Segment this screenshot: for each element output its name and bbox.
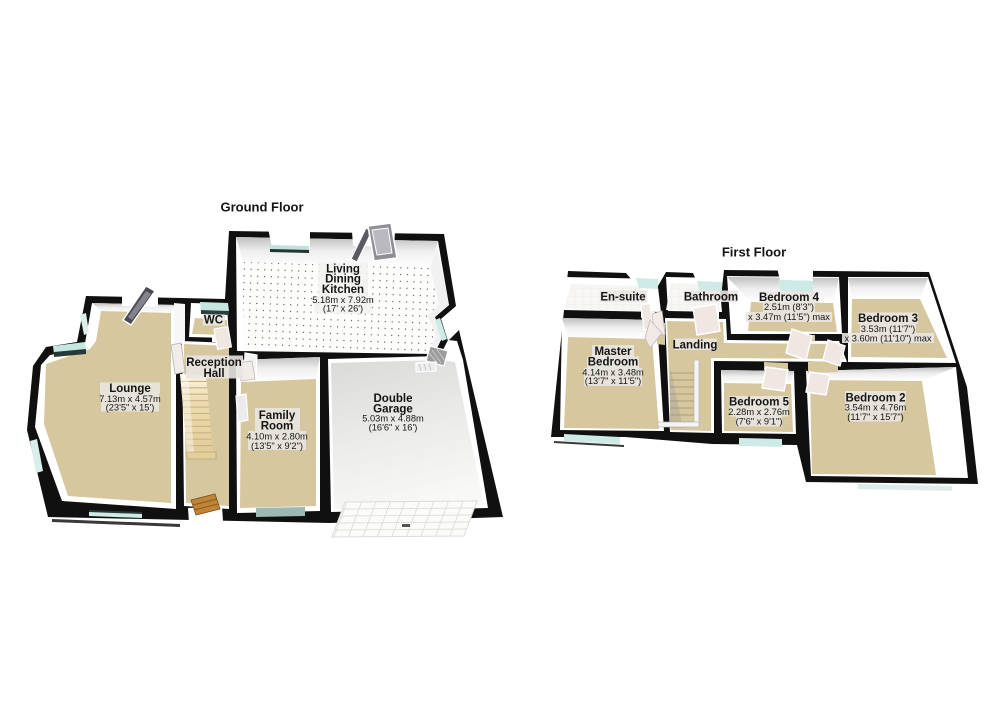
svg-text:(17' x 26'): (17' x 26') xyxy=(323,303,363,313)
svg-text:Hall: Hall xyxy=(203,368,224,380)
svg-text:x 3.47m (11'5") max: x 3.47m (11'5") max xyxy=(748,312,830,322)
svg-text:(7'6" x 9'1"): (7'6" x 9'1") xyxy=(736,416,783,426)
svg-text:2.51m (8'3"): 2.51m (8'3") xyxy=(764,302,814,312)
svg-text:WC: WC xyxy=(204,315,223,327)
svg-text:(13'7" x 11'5"): (13'7" x 11'5") xyxy=(585,376,642,386)
svg-text:(23'5" x 15'): (23'5" x 15') xyxy=(106,402,155,412)
svg-text:3.53m (11'7"): 3.53m (11'7") xyxy=(861,324,916,334)
svg-text:(13'5" x 9'2"): (13'5" x 9'2") xyxy=(251,441,303,451)
svg-text:Ground Floor: Ground Floor xyxy=(220,200,303,215)
svg-text:x 3.60m (11'10") max: x 3.60m (11'10") max xyxy=(844,334,931,344)
svg-text:En-suite: En-suite xyxy=(600,291,645,303)
svg-text:2.28m x 2.76m: 2.28m x 2.76m xyxy=(728,407,790,417)
svg-text:3.54m x 4.76m: 3.54m x 4.76m xyxy=(845,402,907,412)
svg-text:Room: Room xyxy=(261,420,294,432)
svg-text:Landing: Landing xyxy=(673,339,718,351)
svg-text:First Floor: First Floor xyxy=(722,245,786,260)
svg-text:(11'7" x 15'7"): (11'7" x 15'7") xyxy=(847,412,904,422)
svg-text:Bathroom: Bathroom xyxy=(684,291,738,303)
svg-text:(16'6" x 16'): (16'6" x 16') xyxy=(369,422,418,432)
